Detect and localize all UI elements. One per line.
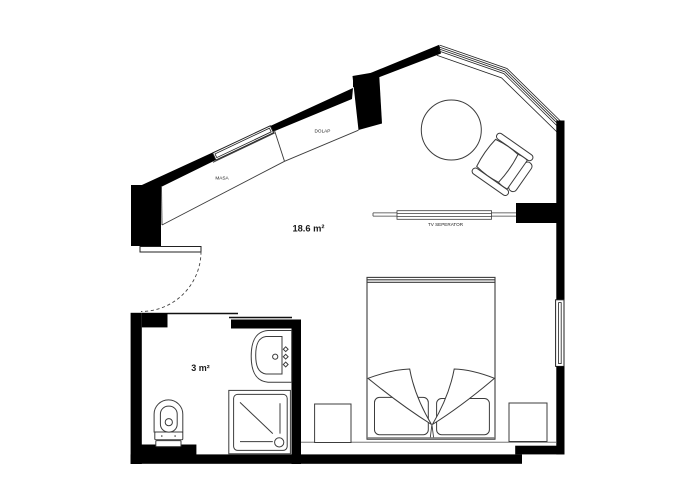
svg-text:DOLAP: DOLAP	[315, 128, 331, 133]
svg-text:3 m²: 3 m²	[191, 363, 210, 373]
svg-text:TV SEPERATOR: TV SEPERATOR	[428, 222, 464, 227]
svg-text:18.6 m²: 18.6 m²	[292, 224, 324, 234]
svg-text:MASA: MASA	[215, 175, 229, 180]
